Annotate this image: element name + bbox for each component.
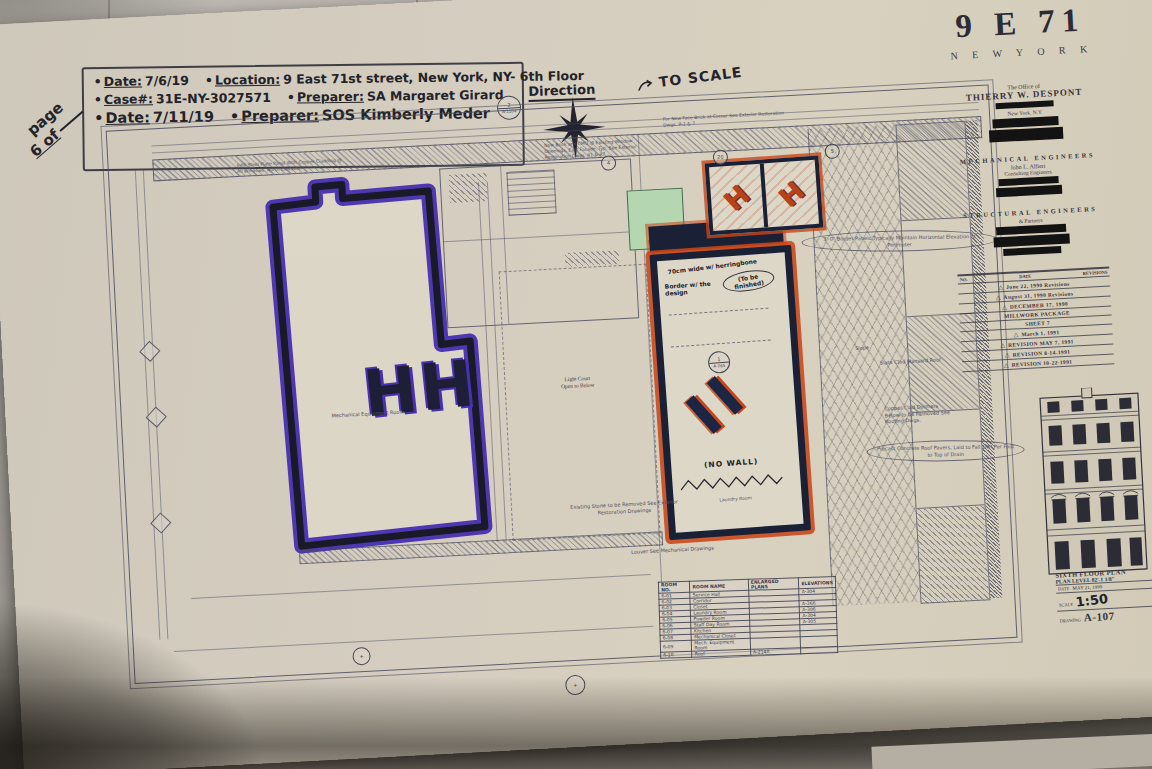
bullet-icon: • (94, 110, 103, 126)
zigzag-line (680, 471, 785, 494)
annotation-label: Location: (215, 72, 280, 88)
annotation-value: 7/11/19 (153, 109, 214, 126)
bullet-icon: • (287, 90, 295, 105)
h-marker: H (773, 174, 811, 212)
revision-text: SHEET 7 (1025, 320, 1050, 327)
redaction-bar (989, 127, 1064, 143)
title-block: 9 E 71 N E W Y O R K The Office of THIER… (933, 0, 1124, 373)
revision-triangle-icon: △ (1013, 330, 1018, 337)
to-scale-text: TO SCALE (658, 64, 743, 90)
annotation-pair: •Date:7/6/19 (94, 73, 189, 89)
annotation-label: Preparer: (297, 89, 364, 105)
no-wall-annotation: (NO WALL) (683, 455, 779, 471)
ii-marker: II (674, 359, 762, 448)
annotation-pair: •Case#:31E-NY-3027571 (94, 90, 271, 107)
to-scale-annotation: TO SCALE (636, 64, 743, 93)
marked-cell: H (709, 164, 764, 231)
light-court (499, 264, 661, 541)
scale-label: SCALE (1059, 602, 1074, 608)
sheet-title-box: SIXTH FLOOR PLAN PLAN LEVEL 82'-1 1/8" D… (1055, 566, 1152, 625)
page-number-annotation: page 6 of (15, 91, 88, 161)
revision-text: REVISION 10-22-1991 (1011, 358, 1072, 367)
revisions-block: NO.DATEREVISIONS △ June 22, 1990 Revisio… (957, 266, 1114, 372)
redaction-bar (996, 185, 1062, 197)
scale-value-handwritten: 1:50 (1075, 591, 1109, 610)
revision-triangle-icon: △ (1004, 361, 1009, 368)
building-elevation-drawing (1038, 385, 1152, 576)
mechanical-engineers-block: MECHANICAL ENGINEERS John L. Alfieri Con… (941, 150, 1115, 200)
hh-marker: HH (360, 346, 480, 431)
grid-bubble: 5 (824, 143, 840, 159)
project-title: 9 E 71 (933, 0, 1107, 46)
revision-text: DECEMBER 17, 1990 (1010, 300, 1068, 309)
bullet-icon: • (230, 108, 239, 124)
annotation-value: SA Margaret Girard (367, 87, 504, 104)
room-enlarged-plan: A-214A (750, 648, 801, 656)
annotation-line: •Date:7/6/19•Location:9 East 71st street… (94, 69, 514, 89)
revision-text: June 22, 1990 Revisions (1006, 280, 1070, 289)
handwritten-border-note: Border w/ the design (664, 279, 721, 297)
annotation-pair: •Preparer:SA Margaret Girard (287, 87, 504, 105)
blueprint-photo: page 6 of •Date:7/6/19•Location:9 East 7… (0, 0, 1152, 769)
grid-bubble: 20 (713, 149, 729, 165)
drawing-number-label: DRAWING (1060, 617, 1082, 623)
room-name: Roof (692, 649, 751, 657)
grid-bubble: 4 (601, 155, 617, 171)
annotation-label: Date: (105, 109, 150, 126)
annotation-label: Date: (104, 73, 142, 88)
room-schedule: ROOM NO.ROOM NAMEENLARGED PLANSELEVATION… (658, 576, 838, 659)
bullet-icon: • (94, 92, 102, 107)
red-marked-cells: H H (705, 156, 824, 236)
orange-marked-room: 70cm wide w/ herringbone Border w/ the d… (649, 245, 811, 540)
annotation-pair: •Date:7/11/19 (94, 109, 214, 126)
to-scale-arrow-icon (636, 77, 654, 93)
drawing-number: A-107 (1084, 610, 1115, 624)
floor-plan-drawing: Elevator HH Mechanical Equipment Room Li… (106, 85, 1018, 685)
marked-cell: H (764, 160, 819, 227)
revision-text: March 1, 1991 (1021, 329, 1059, 337)
revision-text: REVISION 8-14-1991 (1012, 348, 1070, 357)
paper-sheet: page 6 of •Date:7/6/19•Location:9 East 7… (0, 0, 1152, 769)
note-copper-dormers: Copper Clad Dormers Below to be Removed … (884, 402, 951, 425)
revision-triangle-icon: △ (996, 293, 1001, 300)
date-label: DATE (1058, 586, 1070, 592)
revision-triangle-icon: △ (1000, 341, 1005, 348)
bullet-icon: • (94, 74, 102, 89)
laundry-room-label: Laundry Room (696, 494, 776, 505)
bullet-icon: • (205, 73, 213, 88)
redaction-bar (1003, 246, 1061, 256)
revisions-header-cell: DATE (1019, 274, 1031, 280)
annotation-value: 31E-NY-3027571 (156, 90, 271, 106)
annotation-value: 7/6/19 (145, 73, 189, 89)
annotation-label: Case#: (104, 91, 153, 107)
revision-triangle-icon: △ (998, 283, 1003, 290)
project-city: N E W Y O R K (936, 42, 1108, 62)
h-marker: H (718, 178, 756, 216)
revisions-header-cell: REVISIONS (1083, 270, 1108, 276)
dashed-line (669, 308, 769, 316)
dashed-line (671, 340, 771, 348)
architect-block: The Office of THIERRY W. DESPONT New Yor… (938, 79, 1113, 145)
room-elevation (801, 647, 838, 654)
room-number: 6-10 (661, 651, 693, 658)
revision-triangle-icon: △ (1005, 351, 1010, 358)
revisions-header-cell: NO. (960, 277, 968, 282)
handwritten-finish-note: (To be finished) (721, 267, 775, 295)
note-slope: Slope (855, 344, 869, 351)
revisions-list: △ June 22, 1990 Revisions △ August 31, 1… (958, 276, 1114, 372)
annotation-line: •Case#:31E-NY-3027571•Preparer:SA Margar… (94, 87, 514, 107)
revision-triangle-icon: △ (1002, 303, 1007, 310)
section-marker-icon: + (565, 674, 586, 695)
structural-engineers-block: STRUCTURAL ENGINEERS & Partners (944, 204, 1118, 259)
